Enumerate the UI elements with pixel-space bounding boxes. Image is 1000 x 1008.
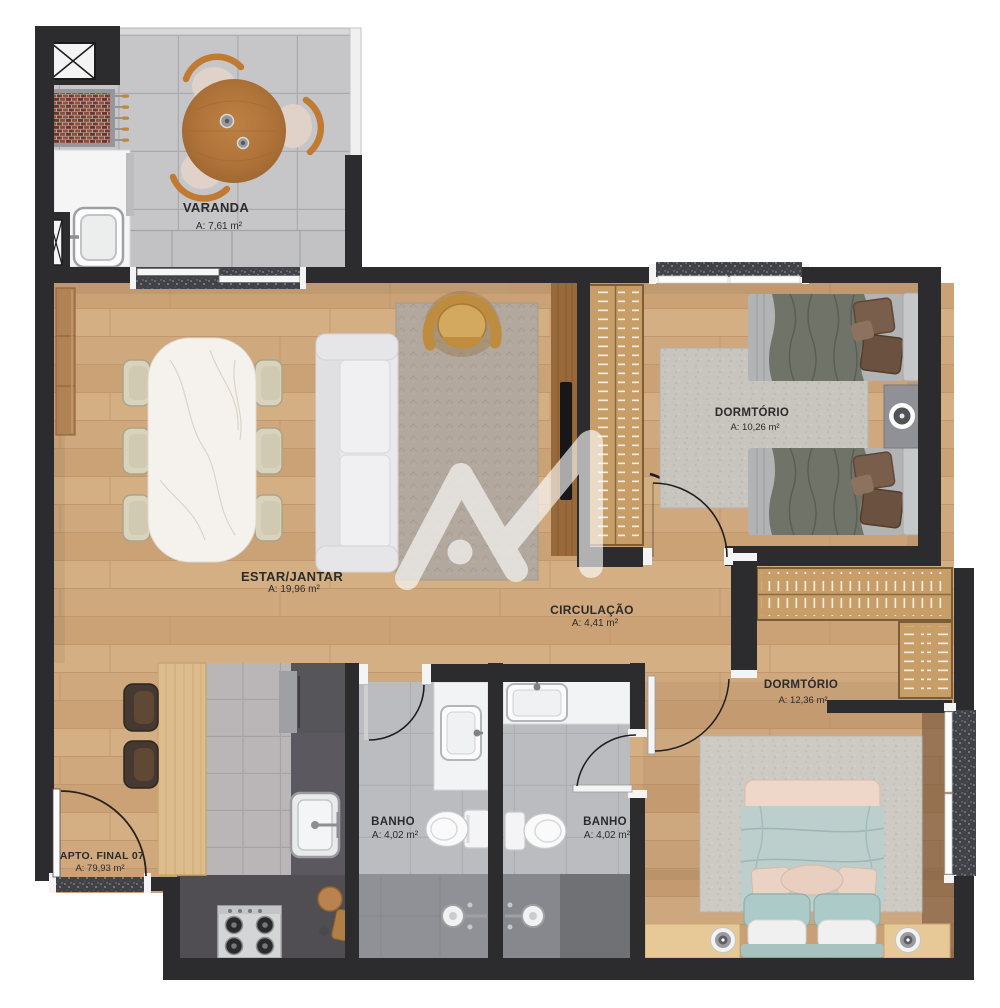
svg-text:A: 79,93 m²: A: 79,93 m² <box>75 863 124 874</box>
svg-text:A: 4,02 m²: A: 4,02 m² <box>584 830 631 841</box>
svg-text:A: 19,96 m²: A: 19,96 m² <box>268 584 320 595</box>
svg-text:BANHO: BANHO <box>371 816 415 828</box>
svg-text:CIRCULAÇÃO: CIRCULAÇÃO <box>550 602 634 617</box>
svg-text:ESTAR/JANTAR: ESTAR/JANTAR <box>241 569 343 584</box>
svg-text:A: 10,26 m²: A: 10,26 m² <box>730 422 779 433</box>
svg-text:A: 12,36 m²: A: 12,36 m² <box>778 695 827 706</box>
svg-text:BANHO: BANHO <box>583 816 627 828</box>
svg-text:APTO. FINAL 07: APTO. FINAL 07 <box>60 850 144 862</box>
svg-text:DORMTÓRIO: DORMTÓRIO <box>764 678 838 691</box>
svg-text:A: 7,61 m²: A: 7,61 m² <box>196 221 243 232</box>
svg-text:VARANDA: VARANDA <box>183 200 249 215</box>
svg-text:DORMTÓRIO: DORMTÓRIO <box>715 406 789 419</box>
svg-text:A: 4,41 m²: A: 4,41 m² <box>572 618 619 629</box>
svg-text:A: 4,02 m²: A: 4,02 m² <box>372 830 419 841</box>
